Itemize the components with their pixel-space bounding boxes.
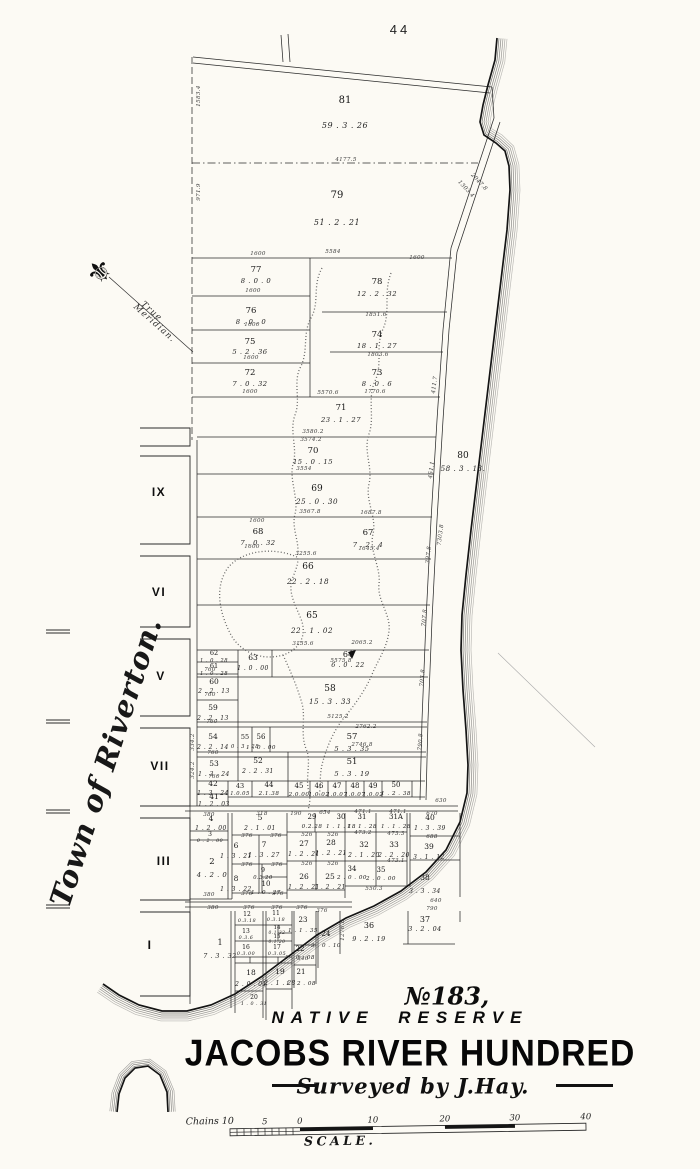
lot-division-lines xyxy=(185,258,458,811)
edge-measurement-label: 1645.4 xyxy=(358,546,380,552)
edge-measurement-label: 1583.4 xyxy=(196,85,202,107)
scale-tick-label: 20 xyxy=(438,1114,451,1124)
edge-measurement-label: 5575.8 xyxy=(330,658,352,664)
lot-area-label: 15 . 0 . 15 xyxy=(293,458,333,466)
lot-area-label: 1.0.05 xyxy=(230,791,250,797)
scale-bar-outline xyxy=(230,1123,586,1136)
edge-measurement-label: 1687.8 xyxy=(360,510,382,516)
lot-area-label: 0.3.6 xyxy=(239,935,254,941)
lot-number-label: 41 xyxy=(209,792,219,801)
edge-measurement-label: 5125.2 xyxy=(327,714,349,720)
lot-area-label: 15 . 3 . 33 xyxy=(309,697,351,706)
lot-number-label: 56 xyxy=(257,733,266,741)
lot-number-label: 63 xyxy=(248,653,258,662)
edge-measurement-label: 760 xyxy=(208,774,220,780)
scale-tick-label: 10 xyxy=(367,1115,379,1125)
lot-area-label: 1 . 0 . 31 xyxy=(241,1001,267,1007)
edge-measurement-label: 380 xyxy=(207,905,219,911)
lot-number-label: 2 xyxy=(209,857,214,867)
lot-number-label: 16 xyxy=(242,944,250,951)
edge-measurement-label: 5570.6 xyxy=(317,390,339,396)
lot-number-label: 74 xyxy=(372,330,383,340)
lot-number-label: 25 xyxy=(325,872,335,881)
edge-measurement-label: 376 xyxy=(271,862,283,868)
edge-measurement-label: 451.1 xyxy=(428,461,436,480)
lot-area-label: 2 . 1 . 20 xyxy=(347,852,380,859)
lot-number-label: 47 xyxy=(333,782,342,790)
lot-area-label: 51 . 2 . 21 xyxy=(314,218,360,227)
lot-area-label: 2 . 0 . 00 xyxy=(336,875,367,881)
survey-map-canvas: ⚜ True Meridian. Chains 10 5010203040 SC… xyxy=(0,0,700,1169)
block-numeral-label: IX xyxy=(152,485,166,499)
lot-number-label: 42 xyxy=(208,779,218,788)
edge-measurement-label: 790 xyxy=(426,906,438,912)
lot-number-label: 68 xyxy=(253,527,264,537)
edge-measurement-label: 376 xyxy=(296,905,308,911)
lot-area-label: 8 . 0 . 0 xyxy=(241,277,272,285)
lot-number-label: 58 xyxy=(324,684,336,694)
edge-measurement-label: 376 xyxy=(241,833,253,839)
edge-measurement-label: 324.2 xyxy=(190,761,196,779)
district-title: JACOBS RIVER HUNDRED xyxy=(185,1032,636,1075)
edge-measurement-label: 1803.6 xyxy=(367,352,389,358)
scale-tick-label: 40 xyxy=(579,1112,592,1122)
edge-measurement-label: 318 xyxy=(256,811,268,817)
lot-area-label: 2.0.00 xyxy=(288,792,310,798)
lot-area-label: 1 . 1 . 35 xyxy=(288,928,318,934)
lot-number-label: 52 xyxy=(253,756,263,765)
edge-measurement-label: 2746.8 xyxy=(350,742,373,748)
lot-number-label: 48 xyxy=(351,782,360,790)
lot-area-label: 5 . 3 . 19 xyxy=(334,770,369,778)
surveyor-credit: Surveyed by J.Hay. xyxy=(297,1074,530,1099)
lot-number-label: 26 xyxy=(299,872,309,881)
lot-area-label: 0.3.00 xyxy=(237,951,255,957)
lot-area-label: 2 . 0 . 01 xyxy=(234,981,267,988)
north-arrow-icon: ⚜ xyxy=(79,250,123,294)
edge-measurement-label: 526 xyxy=(327,832,339,838)
edge-measurement-label: 397.8 xyxy=(425,546,433,564)
lot-number-label: 62 xyxy=(210,649,218,657)
lot-area-label: 3 . 1 . 12 xyxy=(413,854,445,861)
lot-number-label: 33 xyxy=(389,840,399,849)
lot-area-label: 1 . 3 . 27 xyxy=(248,852,280,859)
edge-measurement-label: 2047.8 xyxy=(469,172,489,193)
lot-number-label: 6 xyxy=(234,841,239,850)
lot-area-label: 3 . 0 . 10 xyxy=(311,943,341,949)
lot-number-label: 54 xyxy=(208,732,218,741)
edge-measurement-label: 1600 xyxy=(244,544,260,550)
scale-unit-label: Chains 10 xyxy=(186,1116,234,1128)
scale-tick-label: 30 xyxy=(509,1113,521,1123)
lot-number-label: 73 xyxy=(372,368,383,378)
lot-number-label: 60 xyxy=(209,677,219,686)
edge-measurement-label: 473.1 xyxy=(386,858,405,864)
edge-measurement-label: 471.1 xyxy=(388,809,407,815)
edge-measurement-label: 670 xyxy=(426,811,438,817)
lot-number-label: 77 xyxy=(251,265,262,275)
block-numeral-label: III xyxy=(157,854,172,868)
lot-number-label: 80 xyxy=(457,451,469,461)
edge-measurement-label: 526 xyxy=(301,861,313,867)
lot-area-label: 0.3.05 xyxy=(268,951,286,957)
lot-area-label: 18 . 1 . 27 xyxy=(357,342,397,350)
edge-measurement-label: 760 xyxy=(204,667,216,673)
edge-measurement-label: 473.2 xyxy=(353,830,372,836)
lot-area-label: 12 . 2 . 32 xyxy=(357,290,397,298)
lot-area-label: 1 . 2 . 21 xyxy=(314,884,346,891)
lot-area-label: 2 . 0 . 00 xyxy=(365,876,396,882)
lot-area-label: 0 . 2 . 00 xyxy=(197,838,223,844)
edge-measurement-label: 1600 xyxy=(244,322,260,328)
lot-number-label: 32 xyxy=(359,840,369,849)
survey-map-sheet: ⚜ True Meridian. Chains 10 5010203040 SC… xyxy=(0,0,700,1169)
lot-area-label: 1 . 3 . 39 xyxy=(414,825,446,832)
lot-number-label: 36 xyxy=(364,921,374,930)
edge-measurement-label: 1600 xyxy=(243,355,259,361)
river-line xyxy=(101,38,514,1015)
lot-number-label: 72 xyxy=(245,368,256,378)
edge-measurement-label: 376 xyxy=(272,891,284,897)
lot-area-label: 58 . 3 . 13. xyxy=(441,464,486,473)
lot-number-label: 53 xyxy=(209,759,219,768)
lot-area-label: 0.3.18 xyxy=(267,917,285,923)
edge-measurement-label: 7303.8 xyxy=(437,524,446,546)
lot-area-label: 3 . 2 . 04 xyxy=(408,925,441,933)
edge-measurement-label: 630 xyxy=(435,798,447,804)
scale-caption: SCALE. xyxy=(304,1132,377,1148)
edge-measurement-label: 1851.6 xyxy=(365,312,387,318)
edge-measurement-label: 376 xyxy=(270,833,282,839)
lot-number-label: 18 xyxy=(246,968,256,977)
lot-number-label: 69 xyxy=(311,484,323,494)
lot-area-label: 1 . 1 . 28 xyxy=(381,824,411,830)
edge-measurement-label: 346 xyxy=(297,956,309,962)
lot-area-label: 1 . 0 . 00 xyxy=(237,665,269,672)
lot-number-label: 29 xyxy=(308,813,317,821)
edge-measurement-label: 1276.8 xyxy=(340,919,346,941)
edge-measurement-label: 760 xyxy=(204,692,216,698)
lot-number-label: 11 xyxy=(272,910,280,917)
edge-measurement-label: 707.8 xyxy=(421,609,429,627)
block-numeral-label: V xyxy=(156,669,166,683)
lot-number-label: 44 xyxy=(265,781,274,789)
lot-number-label: 46 xyxy=(315,782,324,790)
lot-number-label: 34 xyxy=(348,865,357,873)
edge-measurement-label: 2762.2 xyxy=(354,724,377,730)
edge-measurement-label: 703.8 xyxy=(419,669,426,687)
lot-number-label: 27 xyxy=(299,839,309,848)
lot-number-label: 49 xyxy=(369,782,378,790)
lot-number-label: 3 xyxy=(208,831,212,838)
lot-number-label: 45 xyxy=(295,782,304,790)
edge-measurement-label: 790.8 xyxy=(418,733,425,751)
cadastral-grid-lines xyxy=(46,34,500,1020)
scan-crease-line xyxy=(498,653,595,747)
lot-number-label: 81 xyxy=(339,95,352,106)
edge-measurement-label: 2065.2 xyxy=(350,640,373,646)
scale-tick-label: 5 xyxy=(262,1117,268,1127)
lot-number-label: 13 xyxy=(242,928,250,935)
edge-measurement-label: 1600 xyxy=(249,518,265,524)
edge-measurement-label: 654 xyxy=(319,810,331,816)
edge-measurement-label: 640 xyxy=(430,898,442,904)
lot-number-label: 21 xyxy=(297,968,306,976)
block-numeral-label: I xyxy=(148,938,153,952)
river-band xyxy=(97,38,520,1112)
edge-measurement-label: 526 xyxy=(301,832,313,838)
edge-measurement-label: 471.1 xyxy=(353,809,372,815)
lot-number-label: 19 xyxy=(275,967,285,976)
lot-number-label: 50 xyxy=(392,781,401,789)
lot-number-label: 70 xyxy=(308,446,319,456)
edge-measurement-label: 376 xyxy=(316,908,328,914)
reserve-number-title: №183, xyxy=(405,982,490,1011)
lot-area-label: 1 . 2 . 08 xyxy=(286,981,316,987)
lot-area-label: 2 . 2 . 31 xyxy=(241,768,274,775)
lot-number-label: 9 xyxy=(261,866,265,874)
lot-number-label: 30 xyxy=(337,813,346,821)
block-numeral-label: VII xyxy=(150,759,169,773)
lot-number-label: 20 xyxy=(250,994,258,1001)
river-line xyxy=(115,1064,170,1112)
scale-tick-label: 0 xyxy=(297,1117,303,1127)
lot-area-label: 1 . 2 . 38 xyxy=(381,791,411,797)
lot-number-label: 22 xyxy=(296,945,305,953)
lot-area-label: 2 . 1 . 01 xyxy=(243,825,276,832)
lot-number-label: 12 xyxy=(243,911,251,918)
lot-number-label: 43 xyxy=(236,782,244,790)
lot-number-label: 65 xyxy=(306,611,318,621)
edge-measurement-label: 760 xyxy=(206,719,218,725)
edge-measurement-label: 473.3 xyxy=(386,831,405,837)
native-reserve-title: NATIVE RESERVE xyxy=(271,1008,528,1028)
edge-measurement-label: 3155.6 xyxy=(292,641,314,647)
lot-number-label: 39 xyxy=(424,842,434,851)
edge-measurement-label: 3554 xyxy=(296,466,312,472)
scale-bar: Chains 10 5010203040 SCALE. xyxy=(186,1110,593,1150)
lot-area-label: 22 . 1 . 02 xyxy=(290,626,333,635)
title-rule-left xyxy=(272,1084,318,1087)
lot-number-label: 71 xyxy=(336,403,347,413)
scale-tick-labels: 5010203040 xyxy=(262,1112,592,1127)
lot-area-label: 1 . 2 . 03 xyxy=(198,801,230,808)
lot-area-label: 22 . 2 . 18 xyxy=(286,577,329,586)
lot-number-label: 66 xyxy=(302,562,314,572)
lot-number-label: 37 xyxy=(420,915,430,924)
lot-number-label: 35 xyxy=(377,866,386,874)
edge-measurement-label: 526 xyxy=(327,861,339,867)
block-numeral-label: VI xyxy=(152,585,166,599)
lot-area-label: 3 . 3 . 34 xyxy=(409,888,441,895)
edge-measurement-label: 1600 xyxy=(250,251,266,257)
edge-measurement-label: 688 xyxy=(426,834,438,840)
edge-measurement-label: 5584 xyxy=(325,249,341,255)
lot-area-label: 1 . 3 . 21 xyxy=(220,853,252,860)
edge-measurement-label: 380 xyxy=(203,812,215,818)
edge-measurement-label: 4177.5 xyxy=(334,157,357,163)
lot-area-label: 1 . 0 . 00 xyxy=(246,745,276,751)
lot-area-label: 1 . 2 . 21 xyxy=(315,850,347,857)
lot-number-label: 23 xyxy=(299,916,308,924)
edge-measurement-label: 760 xyxy=(207,750,219,756)
edge-measurement-label: 1770.6 xyxy=(364,389,386,395)
lot-number-label: 76 xyxy=(246,306,257,316)
edge-measurement-label: 380 xyxy=(203,892,215,898)
lot-number-label: 67 xyxy=(363,528,374,538)
edge-measurement-label: 334.2 xyxy=(190,733,196,751)
edge-measurement-label: 376 xyxy=(271,905,283,911)
lot-area-label: 59 . 3 . 26 xyxy=(322,121,368,130)
lot-number-label: 59 xyxy=(208,703,218,712)
edge-measurement-label: 376 xyxy=(241,862,253,868)
edge-measurement-label: 3574.2 xyxy=(300,437,322,443)
river-line xyxy=(100,39,516,1018)
lot-number-label: 38 xyxy=(420,873,430,882)
lot-number-label: 8 xyxy=(234,874,239,883)
lot-area-label: 4 . 2 . 0 xyxy=(196,871,228,879)
lot-number-label: 7 xyxy=(262,840,267,849)
edge-measurement-label: 971.9 xyxy=(196,183,202,201)
lot-number-label: 28 xyxy=(326,838,336,847)
edge-measurement-label: 376 xyxy=(243,905,255,911)
lot-area-label: 0.2.28 xyxy=(302,824,323,830)
lot-area-label: 7 . 3 . 32 xyxy=(203,952,236,960)
lot-number-label: 10 xyxy=(262,880,271,888)
lot-number-label: 78 xyxy=(372,277,383,287)
edge-measurement-label: 3255.6 xyxy=(295,551,317,557)
lot-number-label: 51 xyxy=(347,757,358,767)
lot-number-label: 1 xyxy=(217,938,222,947)
edge-measurement-label: 1600 xyxy=(245,288,261,294)
edge-measurement-label: 190 xyxy=(290,811,302,817)
lot-number-label: 55 xyxy=(241,733,249,741)
sheet-number: 44 xyxy=(390,22,410,37)
lot-number-label: 24 xyxy=(322,930,331,938)
lot-area-label: 23 . 1 . 27 xyxy=(320,416,361,424)
lot-number-label: 79 xyxy=(331,190,344,201)
edge-measurement-label: 1600 xyxy=(409,255,425,261)
title-rule-right xyxy=(556,1084,613,1087)
lot-number-label: 17 xyxy=(273,944,281,951)
edge-measurement-label: 3567.8 xyxy=(299,509,321,515)
edge-measurement-label: 1600 xyxy=(242,389,258,395)
lot-area-label: 0.3.18 xyxy=(238,918,256,924)
lot-number-label: 57 xyxy=(347,732,358,742)
edge-measurement-label: 550.3 xyxy=(365,886,383,892)
compass: ⚜ True Meridian. xyxy=(79,250,193,352)
edge-measurement-label: 3580.2 xyxy=(302,429,324,435)
edge-measurement-label: 411.7 xyxy=(431,376,439,395)
lot-area-label: 7 . 0 . 32 xyxy=(232,380,267,388)
lot-area-label: 9 . 2 . 19 xyxy=(352,935,385,943)
lot-area-label: 2.1.38 xyxy=(258,791,280,797)
lot-area-label: 25 . 0 . 30 xyxy=(295,497,338,506)
lot-area-label: 8 . 0 . 6 xyxy=(362,380,393,388)
lot-number-label: 75 xyxy=(245,337,256,347)
edge-measurement-label: 376 xyxy=(241,891,253,897)
